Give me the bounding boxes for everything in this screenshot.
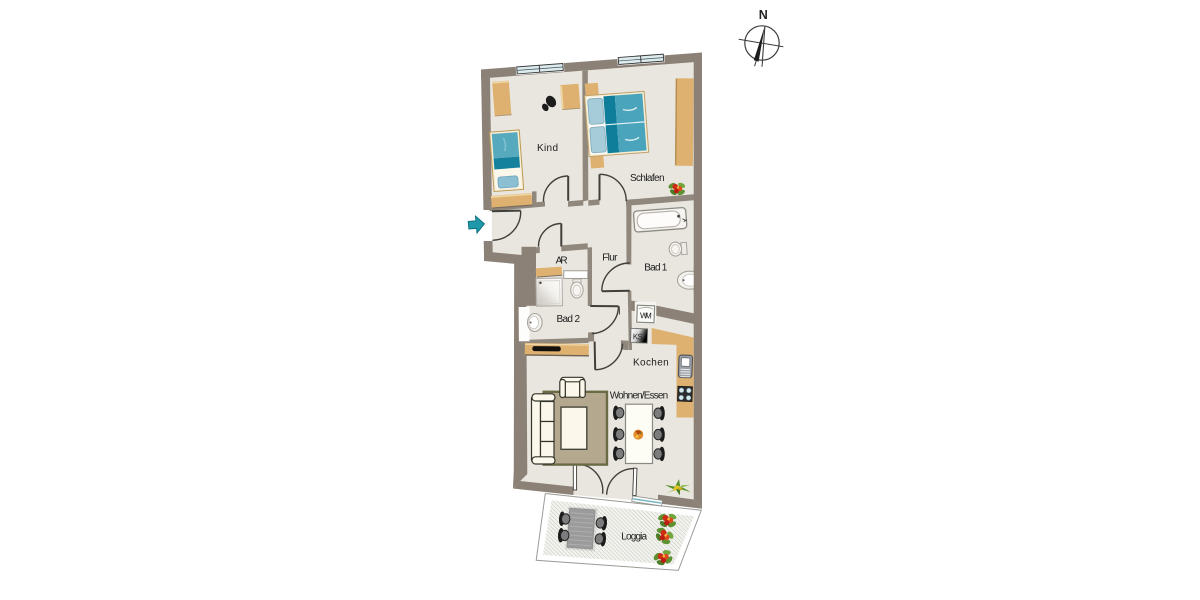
svg-text:Kind: Kind	[537, 143, 558, 154]
svg-text:N: N	[759, 8, 768, 22]
svg-text:Schlafen: Schlafen	[630, 173, 665, 184]
svg-text:AR: AR	[556, 256, 568, 267]
svg-text:KS: KS	[633, 332, 643, 341]
svg-text:Bad 2: Bad 2	[557, 314, 581, 325]
svg-text:Kochen: Kochen	[633, 357, 669, 368]
svg-text:Loggia: Loggia	[621, 531, 647, 542]
svg-text:Bad 1: Bad 1	[644, 262, 667, 273]
svg-text:Flur: Flur	[602, 252, 618, 263]
svg-text:WM: WM	[640, 311, 652, 320]
svg-text:Wohnen/Essen: Wohnen/Essen	[610, 391, 669, 402]
